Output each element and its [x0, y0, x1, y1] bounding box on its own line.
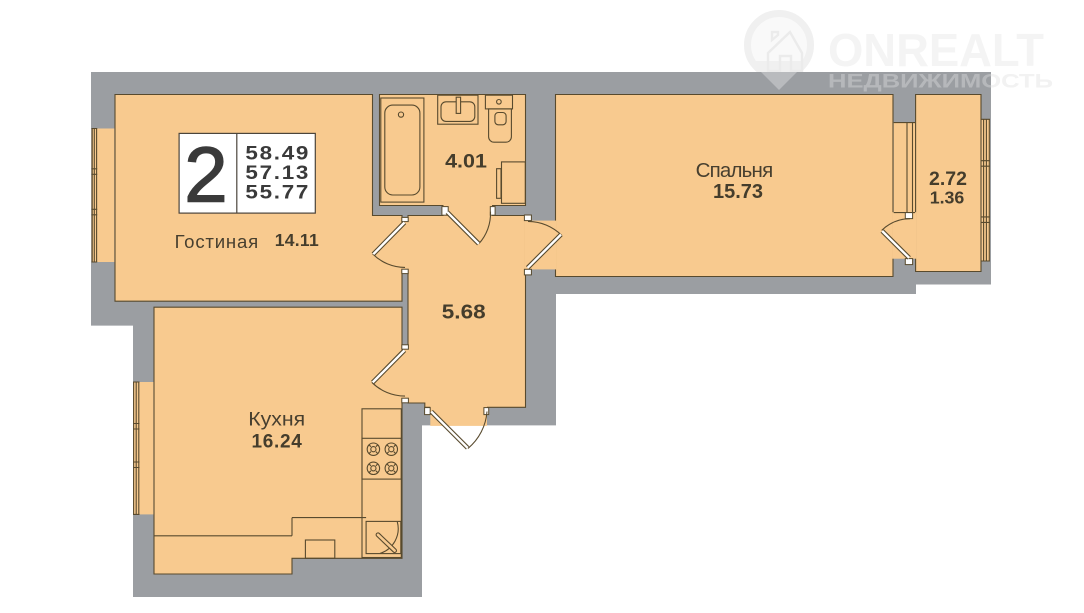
svg-text:Кухня: Кухня [248, 410, 305, 431]
svg-text:1.36: 1.36 [930, 187, 965, 207]
svg-text:НЕДВИЖИМОСТЬ: НЕДВИЖИМОСТЬ [828, 72, 1053, 93]
svg-text:57.13: 57.13 [245, 162, 310, 183]
svg-text:4.01: 4.01 [445, 152, 487, 173]
svg-text:58.49: 58.49 [245, 143, 310, 164]
svg-text:16.24: 16.24 [251, 431, 302, 452]
svg-text:55.77: 55.77 [245, 182, 310, 203]
svg-text:2: 2 [184, 130, 227, 218]
svg-text:Спальня: Спальня [696, 159, 773, 182]
svg-text:5.68: 5.68 [442, 300, 486, 323]
svg-text:14.11: 14.11 [275, 230, 319, 250]
svg-text:Гостиная: Гостиная [175, 231, 259, 252]
svg-text:ONREALT: ONREALT [828, 24, 1044, 76]
svg-text:15.73: 15.73 [713, 181, 763, 203]
